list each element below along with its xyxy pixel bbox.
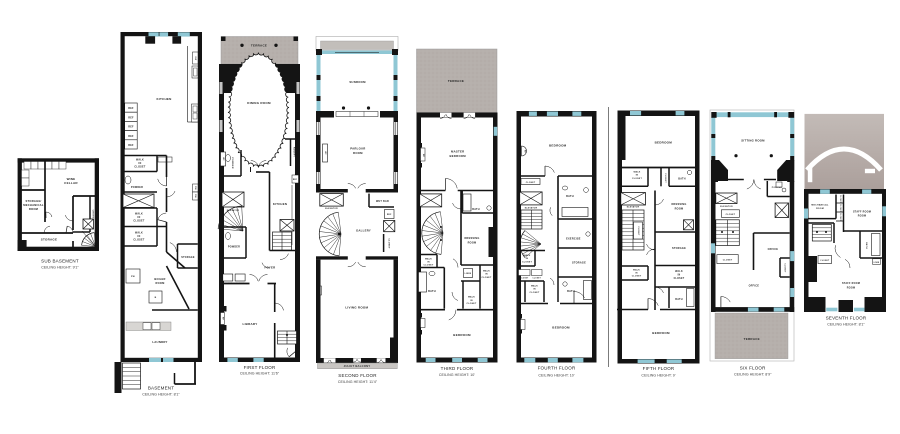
svg-text:WALK: WALK: [633, 269, 640, 272]
svg-text:CEILING HEIGHT: 11'6": CEILING HEIGHT: 11'6": [240, 371, 280, 375]
svg-text:TERRACE: TERRACE: [744, 337, 760, 341]
svg-text:BATH: BATH: [675, 298, 682, 301]
svg-text:DW: DW: [194, 194, 196, 198]
svg-text:CLOSET: CLOSET: [530, 292, 540, 294]
svg-text:BEDROOM: BEDROOM: [552, 326, 570, 330]
svg-text:BASEMENT: BASEMENT: [148, 386, 174, 391]
svg-text:KITCHEN: KITCHEN: [156, 97, 171, 101]
svg-text:WALK: WALK: [675, 270, 683, 273]
svg-text:CLOSET: CLOSET: [674, 278, 685, 280]
svg-text:MECHANICAL: MECHANICAL: [811, 204, 829, 207]
svg-text:FOURTH FLOOR: FOURTH FLOOR: [538, 366, 576, 371]
svg-text:SEVENTH FLOOR: SEVENTH FLOOR: [826, 316, 867, 321]
svg-text:BEDROOM: BEDROOM: [549, 144, 567, 148]
svg-text:CEILING HEIGHT: 9'1": CEILING HEIGHT: 9'1": [41, 265, 79, 269]
svg-text:REF: REF: [128, 135, 134, 138]
svg-text:REF: REF: [293, 179, 298, 181]
svg-text:B: B: [155, 297, 157, 299]
svg-text:CLOSET: CLOSET: [526, 182, 536, 184]
svg-text:CLOSET: CLOSET: [839, 195, 841, 203]
svg-text:ELEVATOR: ELEVATOR: [325, 207, 338, 210]
svg-text:STORAGE: STORAGE: [181, 256, 195, 259]
svg-text:IN: IN: [470, 300, 473, 302]
svg-text:IN: IN: [526, 258, 529, 260]
svg-text:ROOM: ROOM: [353, 151, 363, 155]
svg-text:BEDROOM: BEDROOM: [453, 333, 471, 337]
svg-text:EXERCISE: EXERCISE: [566, 238, 581, 241]
svg-text:REF: REF: [128, 126, 134, 129]
svg-text:POWDER: POWDER: [131, 186, 143, 189]
svg-text:REF: REF: [387, 214, 392, 216]
svg-text:CLOSET: CLOSET: [820, 260, 830, 262]
svg-text:ROOM: ROOM: [468, 241, 477, 244]
svg-text:LAUNDRY: LAUNDRY: [152, 340, 167, 344]
svg-text:CLOSET: CLOSET: [482, 277, 492, 279]
svg-text:POWDER: POWDER: [228, 246, 240, 249]
svg-text:IN: IN: [678, 275, 681, 277]
svg-text:SIX FLOOR: SIX FLOOR: [740, 366, 766, 371]
svg-text:JULIET BALCONY: JULIET BALCONY: [344, 364, 371, 368]
svg-text:BATH: BATH: [472, 208, 479, 211]
svg-text:CEILING HEIGHT: 8'1": CEILING HEIGHT: 8'1": [827, 323, 865, 327]
svg-text:IN: IN: [533, 289, 536, 291]
svg-text:WF: WF: [324, 151, 326, 155]
svg-text:LIVING ROOM: LIVING ROOM: [345, 306, 368, 310]
svg-text:CLOSET: CLOSET: [533, 278, 542, 280]
svg-text:REF: REF: [128, 144, 134, 147]
svg-text:OFFICE: OFFICE: [768, 248, 779, 251]
svg-text:REF: REF: [128, 116, 134, 119]
svg-text:WET BAR: WET BAR: [376, 200, 389, 203]
svg-text:CEILING HEIGHT: 11'4": CEILING HEIGHT: 11'4": [338, 380, 378, 384]
svg-text:CLOSET: CLOSET: [520, 278, 529, 280]
svg-text:TERRACE: TERRACE: [251, 44, 267, 48]
svg-text:IN: IN: [427, 262, 430, 264]
svg-text:IN: IN: [636, 175, 639, 177]
svg-text:LINEN: LINEN: [874, 262, 880, 264]
svg-text:WALK: WALK: [531, 285, 538, 288]
svg-text:CELLAR: CELLAR: [64, 181, 78, 185]
svg-text:WALK: WALK: [633, 171, 640, 174]
svg-text:WALK: WALK: [483, 270, 490, 273]
svg-text:DRESSING: DRESSING: [464, 237, 479, 240]
svg-text:CHUTE: CHUTE: [92, 210, 94, 219]
svg-text:ROOM: ROOM: [847, 286, 855, 289]
svg-text:CLOSET: CLOSET: [839, 213, 841, 221]
svg-text:TERRACE: TERRACE: [448, 79, 464, 83]
svg-text:CLOSET: CLOSET: [467, 303, 477, 305]
svg-text:STORAGE: STORAGE: [41, 238, 58, 242]
svg-text:SUNROOM: SUNROOM: [349, 80, 366, 84]
svg-text:CLOSET: CLOSET: [723, 260, 733, 262]
svg-text:CLOSET: CLOSET: [133, 239, 144, 242]
svg-text:DINING ROOM: DINING ROOM: [247, 101, 271, 105]
svg-text:CLOSET: CLOSET: [726, 214, 736, 216]
svg-text:STORAGE: STORAGE: [672, 247, 686, 250]
svg-text:CEILING HEIGHT: 8'1": CEILING HEIGHT: 8'1": [142, 393, 180, 397]
svg-text:CLOSET: CLOSET: [632, 276, 642, 278]
svg-text:ROOM: ROOM: [816, 208, 824, 210]
svg-text:CLOSET: CLOSET: [134, 166, 145, 169]
svg-text:BATH: BATH: [678, 178, 685, 181]
svg-text:ROOM: ROOM: [675, 207, 684, 210]
svg-text:POWDER: POWDER: [231, 157, 233, 169]
svg-text:CLOSET: CLOSET: [784, 263, 786, 273]
svg-text:MECHANICAL: MECHANICAL: [23, 203, 44, 207]
svg-text:OFFICE: OFFICE: [749, 285, 760, 288]
svg-text:PANTRY: PANTRY: [293, 147, 296, 158]
svg-text:REF: REF: [128, 107, 134, 110]
svg-text:ELEVATOR: ELEVATOR: [720, 205, 733, 208]
svg-text:STAFF ROOM: STAFF ROOM: [853, 211, 871, 214]
svg-text:STORAGE/: STORAGE/: [26, 199, 42, 203]
svg-text:CLOSET: CLOSET: [664, 173, 666, 183]
svg-text:CEILING HEIGHT: 8'9": CEILING HEIGHT: 8'9": [734, 373, 772, 377]
svg-text:POWDER: POWDER: [772, 187, 783, 189]
svg-text:WF: WF: [222, 157, 224, 161]
svg-text:BATH: BATH: [865, 242, 868, 249]
svg-text:WALK: WALK: [425, 258, 432, 261]
svg-text:THIRD FLOOR: THIRD FLOOR: [441, 366, 474, 371]
svg-text:CLOSET: CLOSET: [424, 265, 434, 267]
svg-text:CLOSET: CLOSET: [637, 226, 639, 236]
svg-text:FOYER: FOYER: [265, 266, 276, 270]
svg-text:SITTING ROOM: SITTING ROOM: [741, 139, 765, 143]
svg-text:DW: DW: [194, 57, 196, 61]
svg-text:IN: IN: [485, 274, 488, 276]
svg-text:ELEVATOR: ELEVATOR: [627, 206, 640, 209]
svg-text:CLOSET: CLOSET: [133, 220, 144, 223]
svg-text:STAFF ROOM: STAFF ROOM: [842, 282, 860, 285]
svg-text:BEDROOM: BEDROOM: [652, 331, 670, 335]
svg-text:ELEVATOR: ELEVATOR: [525, 207, 538, 210]
svg-text:CEILING HEIGHT: 10': CEILING HEIGHT: 10': [538, 374, 574, 378]
svg-text:BOILER: BOILER: [154, 277, 165, 281]
svg-text:ROOM: ROOM: [29, 207, 39, 211]
svg-text:WALK: WALK: [468, 296, 475, 299]
svg-text:CLOSET: CLOSET: [839, 204, 841, 212]
svg-text:BEDROOM: BEDROOM: [450, 154, 467, 158]
svg-text:ROOM: ROOM: [858, 215, 866, 218]
svg-text:LIBRARY: LIBRARY: [243, 322, 258, 326]
svg-text:DW: DW: [194, 186, 196, 190]
svg-text:BEDROOM: BEDROOM: [655, 141, 673, 145]
svg-text:CLOSET: CLOSET: [632, 178, 642, 180]
svg-text:ROOM: ROOM: [155, 281, 164, 285]
svg-text:LINEN: LINEN: [465, 273, 472, 275]
svg-text:BATH: BATH: [428, 290, 436, 293]
svg-text:CLOSET: CLOSET: [522, 261, 532, 263]
svg-text:BATH: BATH: [566, 195, 574, 198]
svg-text:KITCHEN: KITCHEN: [273, 202, 287, 206]
svg-text:SECOND FLOOR: SECOND FLOOR: [338, 373, 377, 378]
svg-text:FIRST FLOOR: FIRST FLOOR: [244, 365, 276, 370]
svg-text:FIFTH FLOOR: FIFTH FLOOR: [643, 366, 675, 371]
svg-text:FW: FW: [131, 276, 136, 278]
svg-text:WALK: WALK: [523, 254, 530, 257]
svg-text:CLOSET: CLOSET: [388, 238, 390, 249]
svg-text:SUB BASEMENT: SUB BASEMENT: [41, 259, 79, 264]
svg-text:CEILING HEIGHT: 10': CEILING HEIGHT: 10': [439, 373, 475, 377]
svg-text:GALLERY: GALLERY: [356, 229, 371, 233]
svg-text:CEILING HEIGHT: 9': CEILING HEIGHT: 9': [641, 374, 675, 378]
svg-text:STORAGE: STORAGE: [572, 262, 586, 265]
svg-text:DRESSING: DRESSING: [671, 203, 686, 206]
svg-text:IN: IN: [635, 273, 638, 275]
